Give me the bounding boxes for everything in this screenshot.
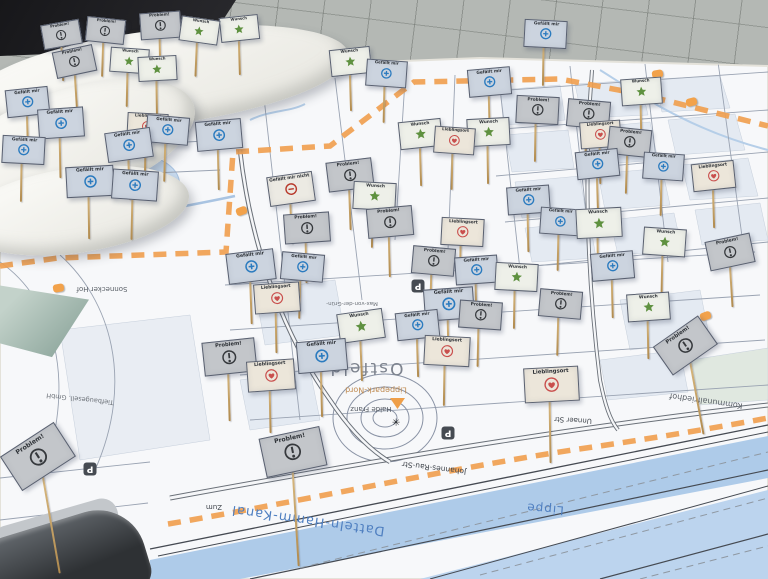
label-lippepark-nord: Lippepark-Nord	[345, 386, 407, 395]
flag-like: Gefällt mir	[37, 106, 85, 139]
star-icon	[413, 127, 428, 142]
heart-circle-icon	[263, 367, 279, 383]
label-halde-franz: Halde Franz	[350, 405, 391, 413]
star-icon	[657, 235, 671, 249]
plus-circle-icon	[441, 296, 458, 313]
plus-circle-icon	[17, 143, 31, 157]
flag-face: Wunsch	[494, 262, 539, 292]
flag-like: Gefällt mir	[280, 251, 326, 283]
flag-label: Gefällt mir	[375, 61, 399, 68]
flag-like: Gefällt mir	[111, 168, 159, 201]
star-icon	[591, 215, 606, 230]
flag-face: Problem!	[515, 95, 560, 125]
plus-circle-icon	[160, 123, 175, 138]
flag-wish: Wunsch	[137, 55, 177, 82]
flag-face: Lieblingsort	[691, 160, 737, 192]
star-icon	[482, 125, 496, 139]
flag-label: Gefällt mir	[306, 340, 336, 349]
flag-face: Gefällt mir	[111, 168, 159, 201]
flag-problem: Problem!	[515, 95, 560, 125]
flag-problem: Problem!	[538, 288, 584, 320]
parking-icon: P	[84, 463, 97, 476]
flag-label: Lieblingsort	[261, 283, 291, 291]
flag-face: Gefällt mir	[590, 250, 636, 282]
flag-label: Gefällt mir	[533, 21, 559, 28]
plus-circle-icon	[605, 259, 620, 274]
label-sonnecker-hof: Sonnecker Hof	[77, 285, 128, 293]
flag-problem: Problem!	[85, 16, 126, 45]
label-max-von-der-gruen: Max-von-der-Grün-	[326, 300, 378, 306]
flag-label: Gefällt mir	[205, 120, 232, 128]
flag-label: Gefällt mir	[652, 154, 676, 161]
flag-label: Problem!	[377, 208, 400, 216]
flag-face: Gefällt mir	[575, 148, 621, 180]
flag-favorite: Lieblingsort	[253, 281, 301, 314]
flag-like: Gefällt mir	[467, 66, 513, 98]
flag-problem: Problem!	[366, 205, 414, 238]
flag-label: Gefällt mir	[291, 253, 317, 261]
heart-circle-icon	[456, 225, 470, 239]
flag-face: Lieblingsort	[433, 126, 476, 155]
flag-face: Problem!	[538, 288, 584, 320]
heart-circle-icon	[448, 134, 462, 148]
flag-wish: Wunsch	[178, 15, 220, 45]
star-icon	[510, 270, 524, 284]
flag-wish: Wunsch	[620, 77, 663, 106]
flag-label: Gefällt mir	[156, 116, 182, 124]
flag-like: Gefällt mir	[575, 148, 621, 180]
flag-like: Gefällt mir	[65, 165, 115, 198]
plus-circle-icon	[469, 263, 483, 277]
star-icon	[635, 85, 649, 99]
flag-wish: Wunsch	[219, 14, 260, 43]
flag-problem: Problem!	[283, 211, 331, 244]
plus-circle-icon	[20, 95, 35, 110]
plus-circle-icon	[539, 27, 553, 41]
exclamation-circle-icon	[382, 214, 397, 229]
flag-face: Gefällt mir	[225, 248, 276, 285]
plus-circle-icon	[243, 258, 260, 275]
plus-circle-icon	[521, 193, 535, 207]
exclamation-circle-icon	[622, 135, 637, 150]
heart-circle-icon	[594, 128, 608, 142]
flag-label: Gefällt mir	[515, 187, 541, 194]
flag-label: Lieblingsort	[533, 368, 569, 377]
flag-label: Wunsch	[588, 209, 608, 216]
flag-label: Problem!	[214, 340, 241, 349]
flag-like: Gefällt mir	[1, 135, 46, 165]
flag-face: Lieblingsort	[253, 281, 301, 314]
heart-circle-icon	[269, 290, 284, 305]
flag-problem: Problem!	[411, 245, 457, 277]
flag-dislike: Gefällt mir nicht	[266, 171, 315, 207]
flag-face: Gefällt mir nicht	[266, 171, 315, 207]
flag-label: Gefällt mir	[463, 257, 489, 264]
flag-label: Lieblingsort	[449, 219, 478, 226]
exclamation-circle-icon	[553, 297, 568, 312]
flag-wish: Wunsch	[494, 262, 539, 292]
heart-circle-icon	[542, 376, 560, 394]
flag-problem: Problem!	[458, 300, 503, 331]
flag-label: Wunsch	[508, 264, 527, 270]
flag-like: Gefällt mir	[145, 114, 191, 146]
minus-circle-icon	[283, 181, 299, 197]
flag-face: Wunsch	[219, 14, 260, 43]
star-icon	[368, 189, 382, 203]
exclamation-circle-icon	[581, 107, 596, 122]
flag-like: Gefällt mir	[104, 127, 153, 163]
exclamation-circle-icon	[154, 19, 168, 33]
exclamation-circle-icon	[721, 243, 738, 260]
flag-face: Wunsch	[137, 55, 177, 82]
heart-circle-icon	[439, 343, 454, 358]
flag-face: Gefällt mir	[145, 114, 191, 146]
plus-circle-icon	[380, 67, 394, 81]
flag-face: Wunsch	[620, 77, 663, 106]
flag-face: Lieblingsort	[423, 335, 470, 367]
plus-circle-icon	[410, 318, 425, 333]
star-icon	[233, 22, 246, 35]
flag-label: Gefällt mir	[11, 137, 37, 144]
star-icon	[353, 318, 369, 334]
plus-circle-icon	[211, 127, 226, 142]
flag-face: Wunsch	[642, 227, 687, 258]
flag-face: Problem!	[283, 211, 331, 244]
flag-face: Wunsch	[575, 207, 622, 239]
flag-face: Gefällt mir	[365, 59, 408, 88]
flag-face: Gefällt mir	[454, 255, 499, 286]
plus-circle-icon	[482, 75, 497, 90]
flag-face: Problem!	[458, 300, 503, 331]
flag-face: Gefällt mir	[65, 165, 115, 198]
flag-face: Gefällt mir	[523, 19, 568, 49]
star-icon	[193, 24, 207, 38]
flag-problem: Problem!	[139, 11, 182, 40]
flag-label: Wunsch	[149, 57, 166, 63]
flag-wish: Wunsch	[642, 227, 687, 258]
flag-face: Gefällt mir	[467, 66, 513, 98]
star-icon	[123, 54, 136, 67]
flag-like: Gefällt mir	[523, 19, 568, 49]
flag-face: Lieblingsort	[246, 358, 296, 392]
plus-circle-icon	[127, 177, 142, 192]
flag-face: Problem!	[366, 205, 414, 238]
flag-favorite: Lieblingsort	[440, 217, 485, 247]
plus-circle-icon	[121, 137, 137, 153]
flag-favorite: Lieblingsort	[433, 126, 476, 155]
plus-circle-icon	[590, 157, 605, 172]
flag-label: Gefällt mir	[75, 167, 103, 174]
flag-label: Gefällt mir	[122, 171, 149, 178]
flag-like: Gefällt mir	[225, 248, 276, 285]
flag-face: Wunsch	[178, 15, 220, 45]
heart-circle-icon	[706, 169, 721, 184]
flag-label: Problem!	[527, 97, 549, 103]
exclamation-circle-icon	[299, 220, 314, 235]
star-icon	[344, 54, 358, 68]
flag-face: Gefällt mir	[1, 135, 46, 165]
flag-label: Lieblingsort	[442, 128, 469, 135]
flag-label: Gefällt mir	[599, 252, 625, 260]
flag-label: Gefällt mir	[549, 209, 573, 216]
photo-scene: OstfeldLippepark-NordHalde Franz✳Kommuna…	[0, 0, 768, 579]
flag-face: Problem!	[411, 245, 457, 277]
flag-like: Gefällt mir	[642, 152, 685, 181]
flag-label: Lieblingsort	[254, 360, 286, 368]
flag-face: Gefällt mir	[642, 152, 685, 181]
flag-label: Wunsch	[366, 183, 385, 189]
viewpoint-icon: ✳	[392, 416, 400, 427]
flag-label: Lieblingsort	[432, 337, 462, 344]
flag-face: Wunsch	[626, 292, 671, 323]
plus-circle-icon	[295, 260, 310, 275]
flag-wish: Wunsch	[575, 207, 622, 239]
flag-face: Problem!	[139, 11, 182, 40]
flag-like: Gefällt mir	[195, 118, 243, 151]
flag-face: Gefällt mir	[104, 127, 153, 163]
parking-icon: P	[442, 427, 455, 440]
flag-face: Gefällt mir	[37, 106, 85, 139]
star-icon	[151, 62, 164, 75]
plus-circle-icon	[314, 348, 331, 365]
plus-circle-icon	[53, 115, 68, 130]
exclamation-circle-icon	[99, 24, 112, 37]
flag-label: Problem!	[149, 13, 170, 20]
flag-face: Problem!	[85, 16, 126, 45]
flag-label: Gefällt mir	[476, 68, 502, 76]
flag-like: Gefällt mir	[590, 250, 636, 282]
flag-favorite: Lieblingsort	[691, 160, 737, 192]
plus-circle-icon	[554, 215, 568, 229]
plus-circle-icon	[82, 174, 98, 190]
flag-face: Lieblingsort	[523, 366, 580, 404]
flag-like: Gefällt mir	[365, 59, 408, 88]
flag-like: Gefällt mir	[296, 338, 349, 375]
flag-face: Gefällt mir	[280, 251, 326, 283]
exclamation-circle-icon	[67, 54, 82, 69]
flag-wish: Wunsch	[626, 292, 671, 323]
flag-label: Problem!	[295, 214, 318, 221]
plus-circle-icon	[657, 160, 671, 174]
exclamation-circle-icon	[281, 440, 304, 463]
flag-favorite: Lieblingsort	[523, 366, 580, 404]
flag-face: Gefällt mir	[195, 118, 243, 151]
flag-face: Lieblingsort	[440, 217, 485, 247]
flag-face: Gefällt mir	[296, 338, 349, 375]
exclamation-circle-icon	[473, 308, 487, 322]
exclamation-circle-icon	[531, 103, 545, 117]
flag-label: Wunsch	[479, 119, 498, 125]
flag-like: Gefällt mir	[454, 255, 499, 286]
exclamation-circle-icon	[426, 254, 441, 269]
flag-favorite: Lieblingsort	[423, 335, 470, 367]
flag-favorite: Lieblingsort	[246, 358, 296, 392]
label-zum: Zum	[206, 503, 222, 511]
flag-label: Gefällt mir	[433, 289, 463, 297]
exclamation-circle-icon	[54, 28, 68, 42]
flag-label: Gefällt mir	[47, 109, 74, 116]
exclamation-circle-icon	[220, 348, 238, 366]
star-icon	[641, 300, 655, 314]
